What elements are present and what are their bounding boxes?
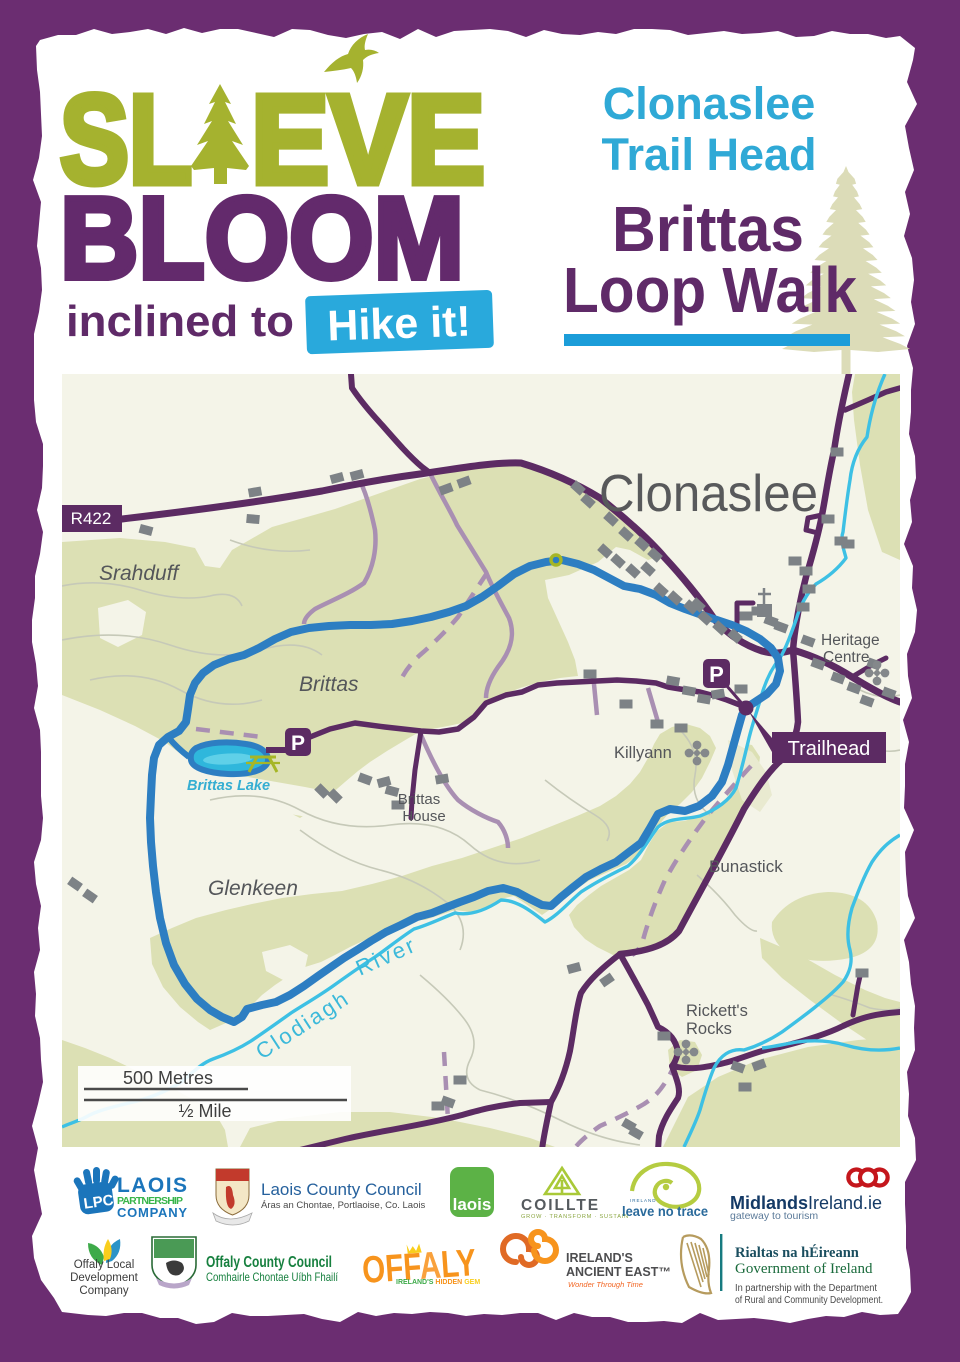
svg-text:R422: R422	[71, 509, 112, 528]
svg-text:Trailhead: Trailhead	[788, 738, 871, 760]
svg-text:ANCIENT EAST™: ANCIENT EAST™	[566, 1265, 671, 1279]
svg-text:Trail Head: Trail Head	[601, 129, 816, 180]
svg-text:Centre: Centre	[823, 649, 870, 666]
svg-text:Clonaslee: Clonaslee	[599, 465, 818, 523]
svg-text:Rickett's: Rickett's	[686, 1002, 748, 1020]
svg-text:IRELAND: IRELAND	[630, 1198, 657, 1203]
svg-text:LAOIS: LAOIS	[117, 1174, 187, 1197]
svg-text:Company: Company	[79, 1285, 128, 1297]
svg-text:Killyann: Killyann	[614, 744, 672, 762]
svg-text:Brittas Lake: Brittas Lake	[187, 778, 270, 794]
svg-text:Heritage: Heritage	[821, 632, 880, 649]
svg-text:GROW · TRANSFORM · SUSTAIN: GROW · TRANSFORM · SUSTAIN	[521, 1214, 629, 1220]
svg-text:Comhairle Chontae Uíbh Fhailí: Comhairle Chontae Uíbh Fhailí	[206, 1270, 339, 1284]
svg-text:In partnership with the Depart: In partnership with the Department	[735, 1283, 877, 1294]
svg-text:IRELAND'S HIDDEN GEM: IRELAND'S HIDDEN GEM	[396, 1279, 480, 1286]
svg-text:P: P	[291, 732, 305, 755]
svg-text:Wonder Through Time: Wonder Through Time	[568, 1280, 643, 1289]
svg-text:500 Metres: 500 Metres	[123, 1068, 213, 1088]
svg-text:gateway to tourism: gateway to tourism	[730, 1210, 818, 1222]
svg-text:Offaly Local: Offaly Local	[74, 1259, 135, 1271]
svg-text:of Rural and Community Develop: of Rural and Community Development.	[735, 1295, 883, 1306]
svg-text:House: House	[402, 808, 445, 825]
svg-text:Rocks: Rocks	[686, 1020, 732, 1038]
svg-text:Brittas: Brittas	[299, 673, 359, 696]
svg-text:Development: Development	[70, 1272, 139, 1284]
svg-text:BLOOM: BLOOM	[60, 173, 464, 303]
svg-text:P: P	[709, 662, 724, 687]
svg-text:inclined to: inclined to	[66, 297, 294, 346]
svg-text:Offaly County Council: Offaly County Council	[206, 1254, 332, 1271]
svg-text:Loop Walk: Loop Walk	[563, 254, 857, 326]
svg-text:leave no trace: leave no trace	[622, 1203, 708, 1219]
svg-text:COILLTE: COILLTE	[521, 1197, 600, 1214]
svg-text:½ Mile: ½ Mile	[178, 1101, 231, 1121]
svg-text:Hike it!: Hike it!	[327, 298, 472, 351]
svg-text:Rialtas na hÉireann: Rialtas na hÉireann	[735, 1244, 859, 1261]
svg-text:Srahduff: Srahduff	[99, 562, 181, 585]
svg-text:IRELAND'S: IRELAND'S	[566, 1251, 633, 1265]
svg-text:COMPANY: COMPANY	[117, 1205, 187, 1220]
svg-text:laois: laois	[453, 1195, 492, 1214]
svg-text:Government of Ireland: Government of Ireland	[735, 1261, 873, 1277]
svg-text:Laois County Council: Laois County Council	[261, 1180, 422, 1199]
svg-text:Clonaslee: Clonaslee	[603, 78, 816, 129]
svg-text:Áras an Chontae, Portlaoise, C: Áras an Chontae, Portlaoise, Co. Laois	[261, 1200, 425, 1211]
svg-text:Glenkeen: Glenkeen	[208, 877, 298, 900]
svg-text:Bunastick: Bunastick	[709, 857, 783, 876]
svg-text:Brittas: Brittas	[398, 791, 441, 808]
